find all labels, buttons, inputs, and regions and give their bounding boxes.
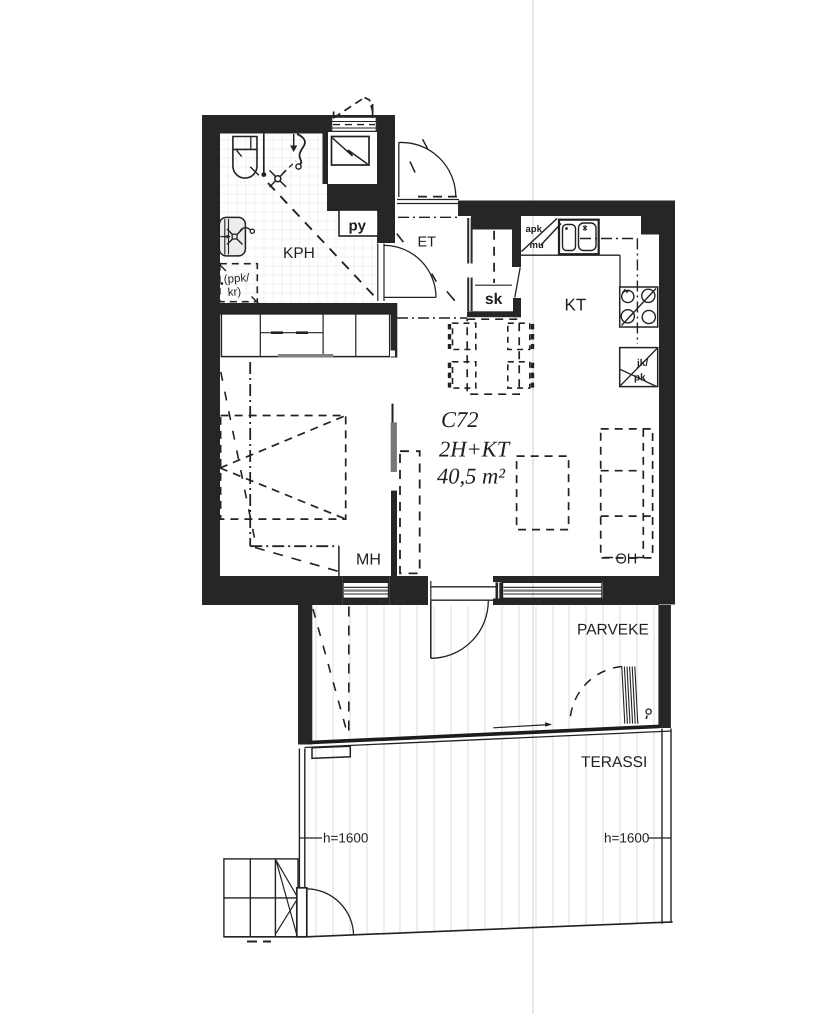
svg-text:2H+KT: 2H+KT: [439, 437, 511, 462]
svg-text:pk: pk: [634, 373, 646, 384]
svg-text:40,5 m²: 40,5 m²: [437, 464, 506, 489]
svg-text:C72: C72: [441, 407, 479, 432]
svg-text:sk: sk: [485, 291, 503, 308]
svg-text:PARVEKE: PARVEKE: [577, 622, 649, 639]
svg-text:KT: KT: [565, 296, 587, 315]
svg-text:(ppk/: (ppk/: [223, 272, 250, 286]
svg-text:KPH: KPH: [283, 245, 315, 262]
svg-text:jk/: jk/: [636, 358, 648, 369]
svg-text:TERASSI: TERASSI: [581, 754, 647, 771]
svg-text:h=1600: h=1600: [604, 831, 649, 846]
svg-text:py: py: [349, 218, 367, 235]
svg-text:kr): kr): [227, 286, 241, 299]
svg-text:MH: MH: [356, 552, 381, 569]
svg-text:OH: OH: [616, 552, 638, 568]
svg-text:ET: ET: [418, 235, 437, 251]
svg-text:h=1600: h=1600: [323, 831, 368, 846]
